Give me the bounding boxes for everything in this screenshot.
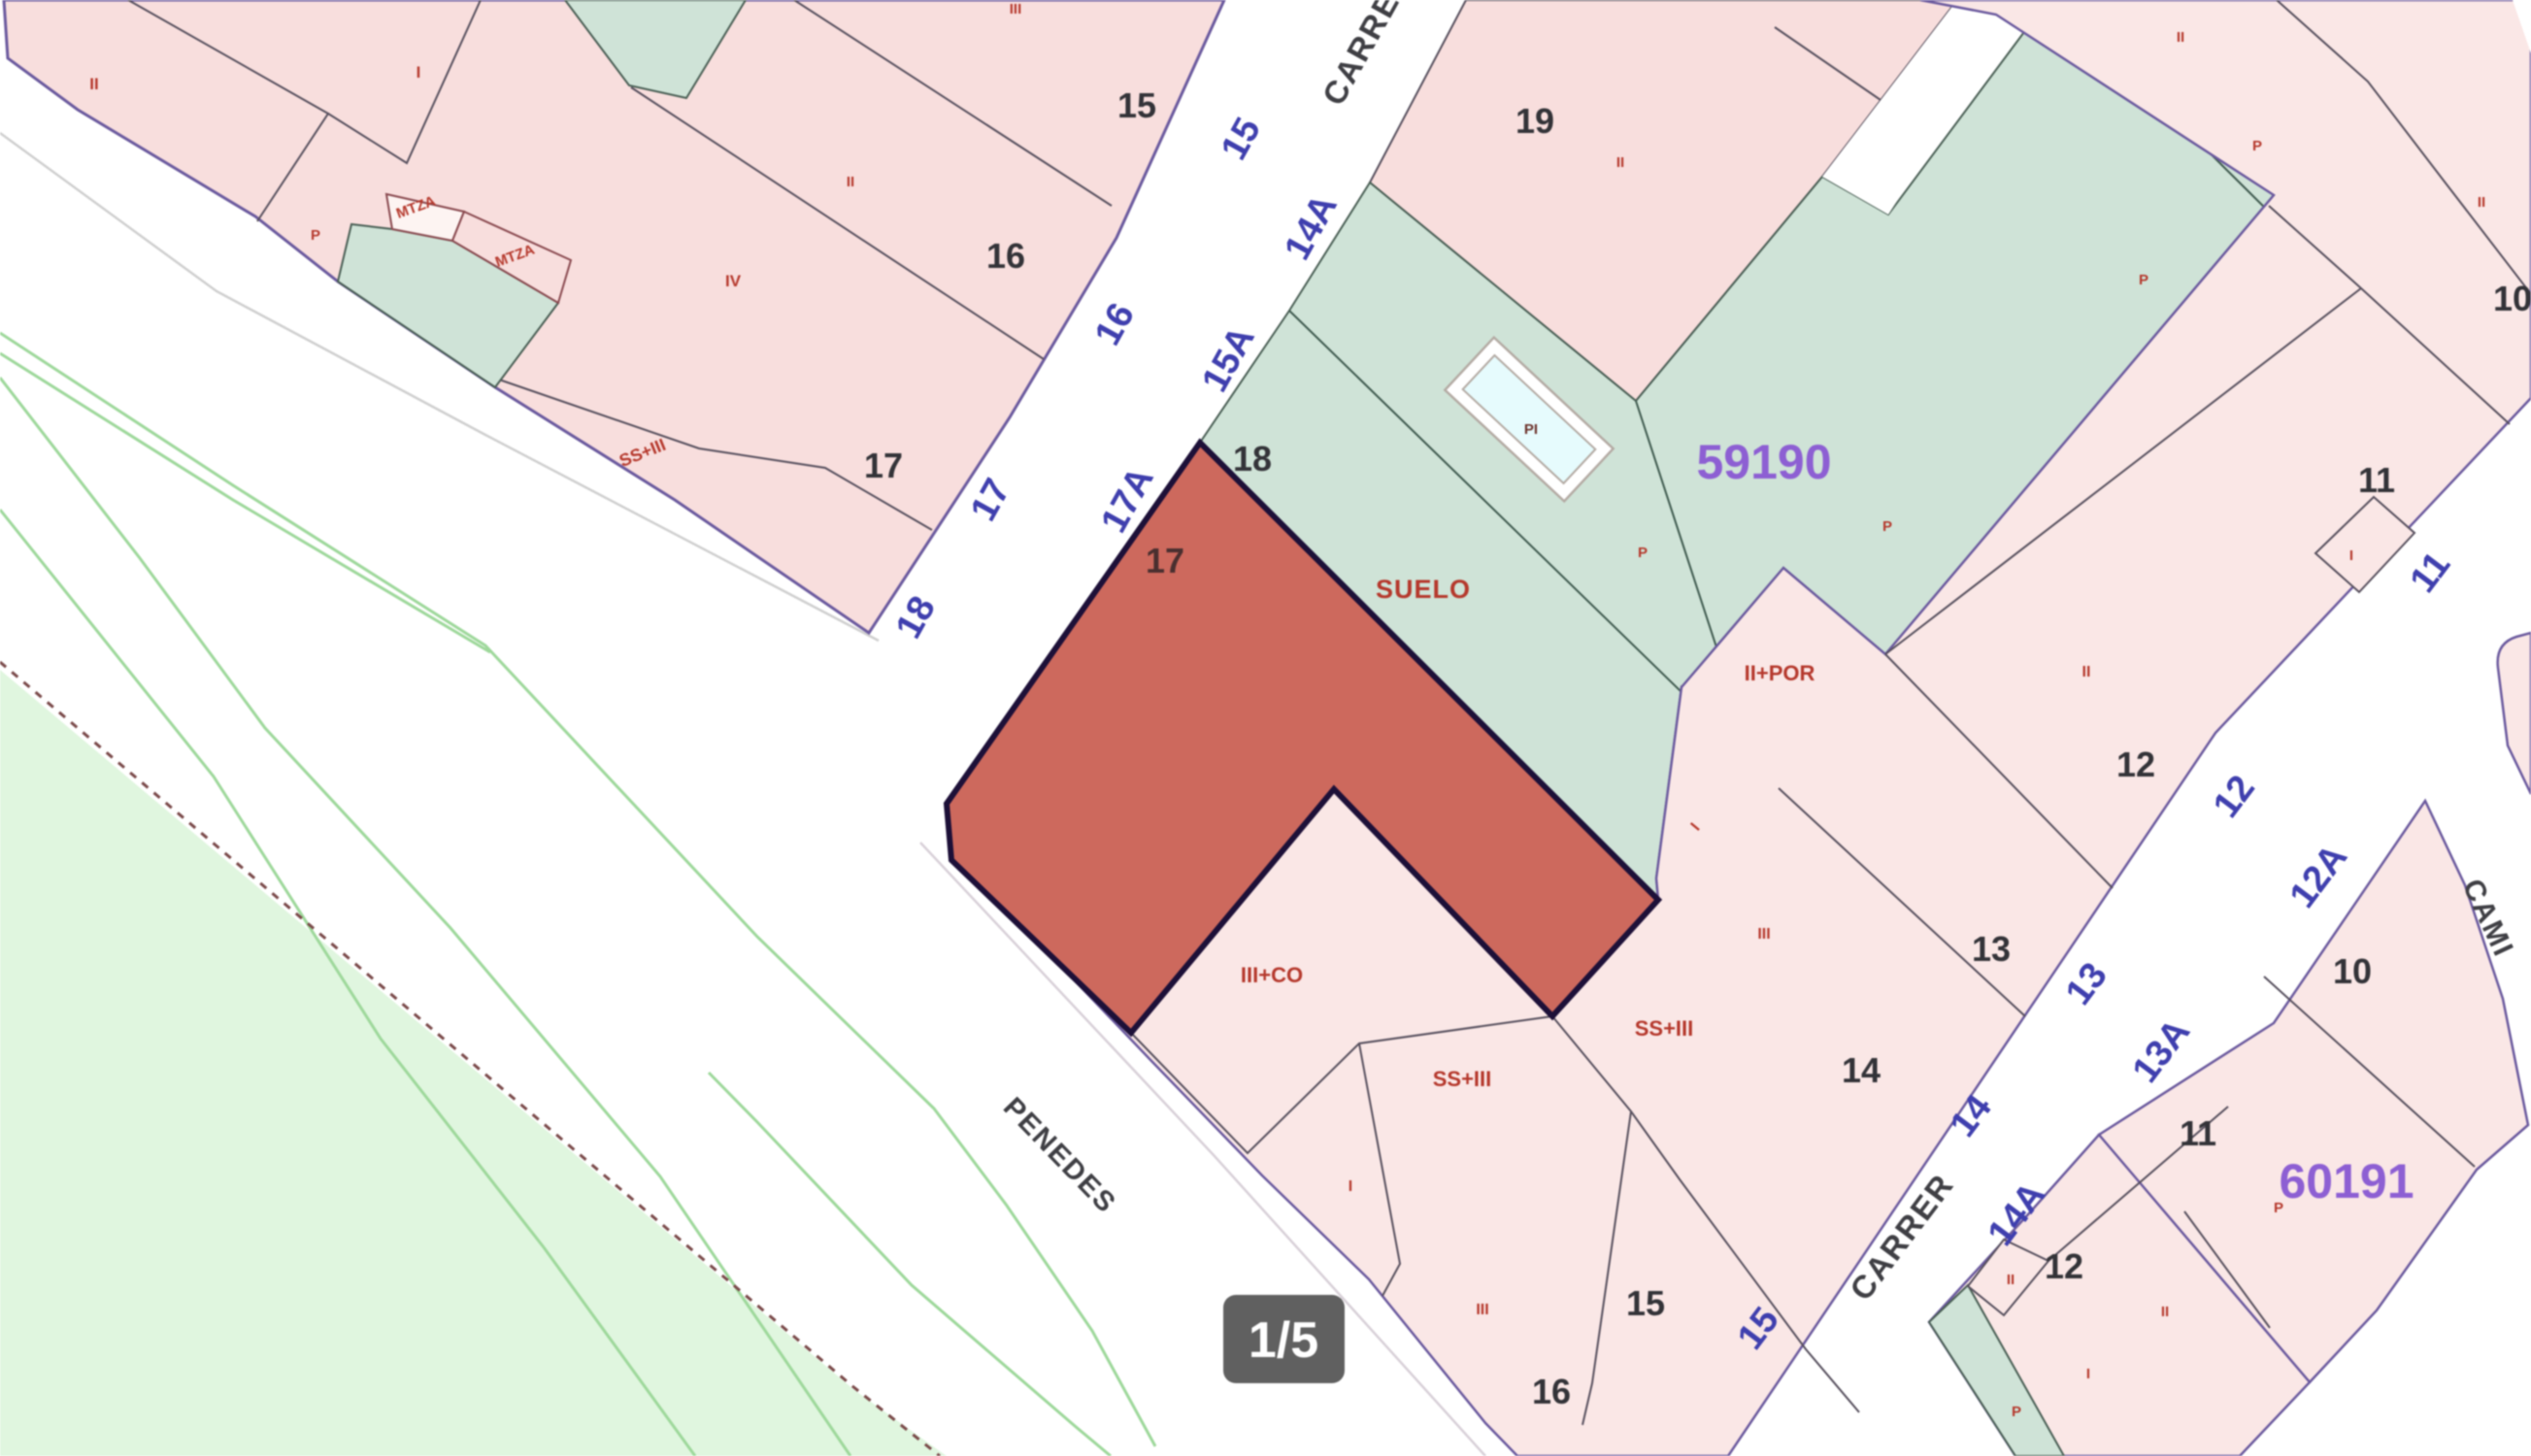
svg-text:14: 14 bbox=[1842, 1050, 1881, 1090]
svg-text:II: II bbox=[2007, 1272, 2015, 1288]
svg-text:I: I bbox=[2349, 547, 2353, 564]
svg-text:I: I bbox=[2086, 1366, 2090, 1382]
svg-text:P: P bbox=[2252, 138, 2262, 154]
svg-text:III+CO: III+CO bbox=[1241, 963, 1303, 987]
svg-text:11: 11 bbox=[2358, 460, 2395, 500]
svg-text:16: 16 bbox=[1532, 1372, 1571, 1411]
svg-text:PI: PI bbox=[1524, 421, 1538, 438]
svg-text:P: P bbox=[1882, 518, 1892, 535]
svg-text:15: 15 bbox=[1626, 1283, 1665, 1323]
svg-text:III: III bbox=[1010, 1, 1022, 17]
svg-text:II: II bbox=[89, 75, 98, 93]
svg-text:12: 12 bbox=[2116, 745, 2155, 784]
svg-text:II: II bbox=[2177, 29, 2184, 46]
svg-text:SS+III: SS+III bbox=[1635, 1016, 1694, 1041]
svg-text:III: III bbox=[1757, 926, 1770, 943]
svg-text:10: 10 bbox=[2333, 951, 2372, 991]
svg-text:II: II bbox=[2082, 664, 2091, 680]
svg-text:60191: 60191 bbox=[2279, 1154, 2414, 1208]
svg-text:II+POR: II+POR bbox=[1745, 661, 1815, 685]
svg-text:II: II bbox=[847, 174, 854, 190]
svg-text:P: P bbox=[2012, 1404, 2021, 1420]
svg-text:19: 19 bbox=[1515, 101, 1554, 141]
svg-text:17: 17 bbox=[1146, 541, 1184, 580]
svg-text:P: P bbox=[311, 227, 320, 244]
svg-text:11: 11 bbox=[2180, 1113, 2216, 1153]
svg-text:59190: 59190 bbox=[1696, 435, 1831, 489]
svg-text:I: I bbox=[1349, 1178, 1352, 1195]
svg-text:IV: IV bbox=[725, 272, 742, 290]
svg-text:P: P bbox=[1638, 545, 1648, 561]
svg-text:SUELO: SUELO bbox=[1376, 575, 1471, 604]
svg-text:12: 12 bbox=[2045, 1246, 2083, 1286]
svg-text:13: 13 bbox=[1972, 929, 2011, 969]
svg-text:SS+III: SS+III bbox=[1433, 1067, 1492, 1091]
svg-text:18: 18 bbox=[1233, 439, 1272, 479]
svg-text:II: II bbox=[2161, 1304, 2169, 1320]
svg-text:II: II bbox=[2478, 194, 2485, 211]
svg-text:16: 16 bbox=[986, 236, 1025, 276]
svg-text:17: 17 bbox=[864, 446, 903, 485]
svg-text:II: II bbox=[1616, 154, 1624, 171]
svg-text:III: III bbox=[1476, 1302, 1488, 1318]
svg-text:I: I bbox=[416, 63, 421, 82]
svg-text:10: 10 bbox=[2493, 279, 2531, 318]
svg-text:15: 15 bbox=[1117, 85, 1156, 125]
svg-text:1/5: 1/5 bbox=[1249, 1312, 1318, 1369]
svg-text:P: P bbox=[2139, 272, 2148, 288]
